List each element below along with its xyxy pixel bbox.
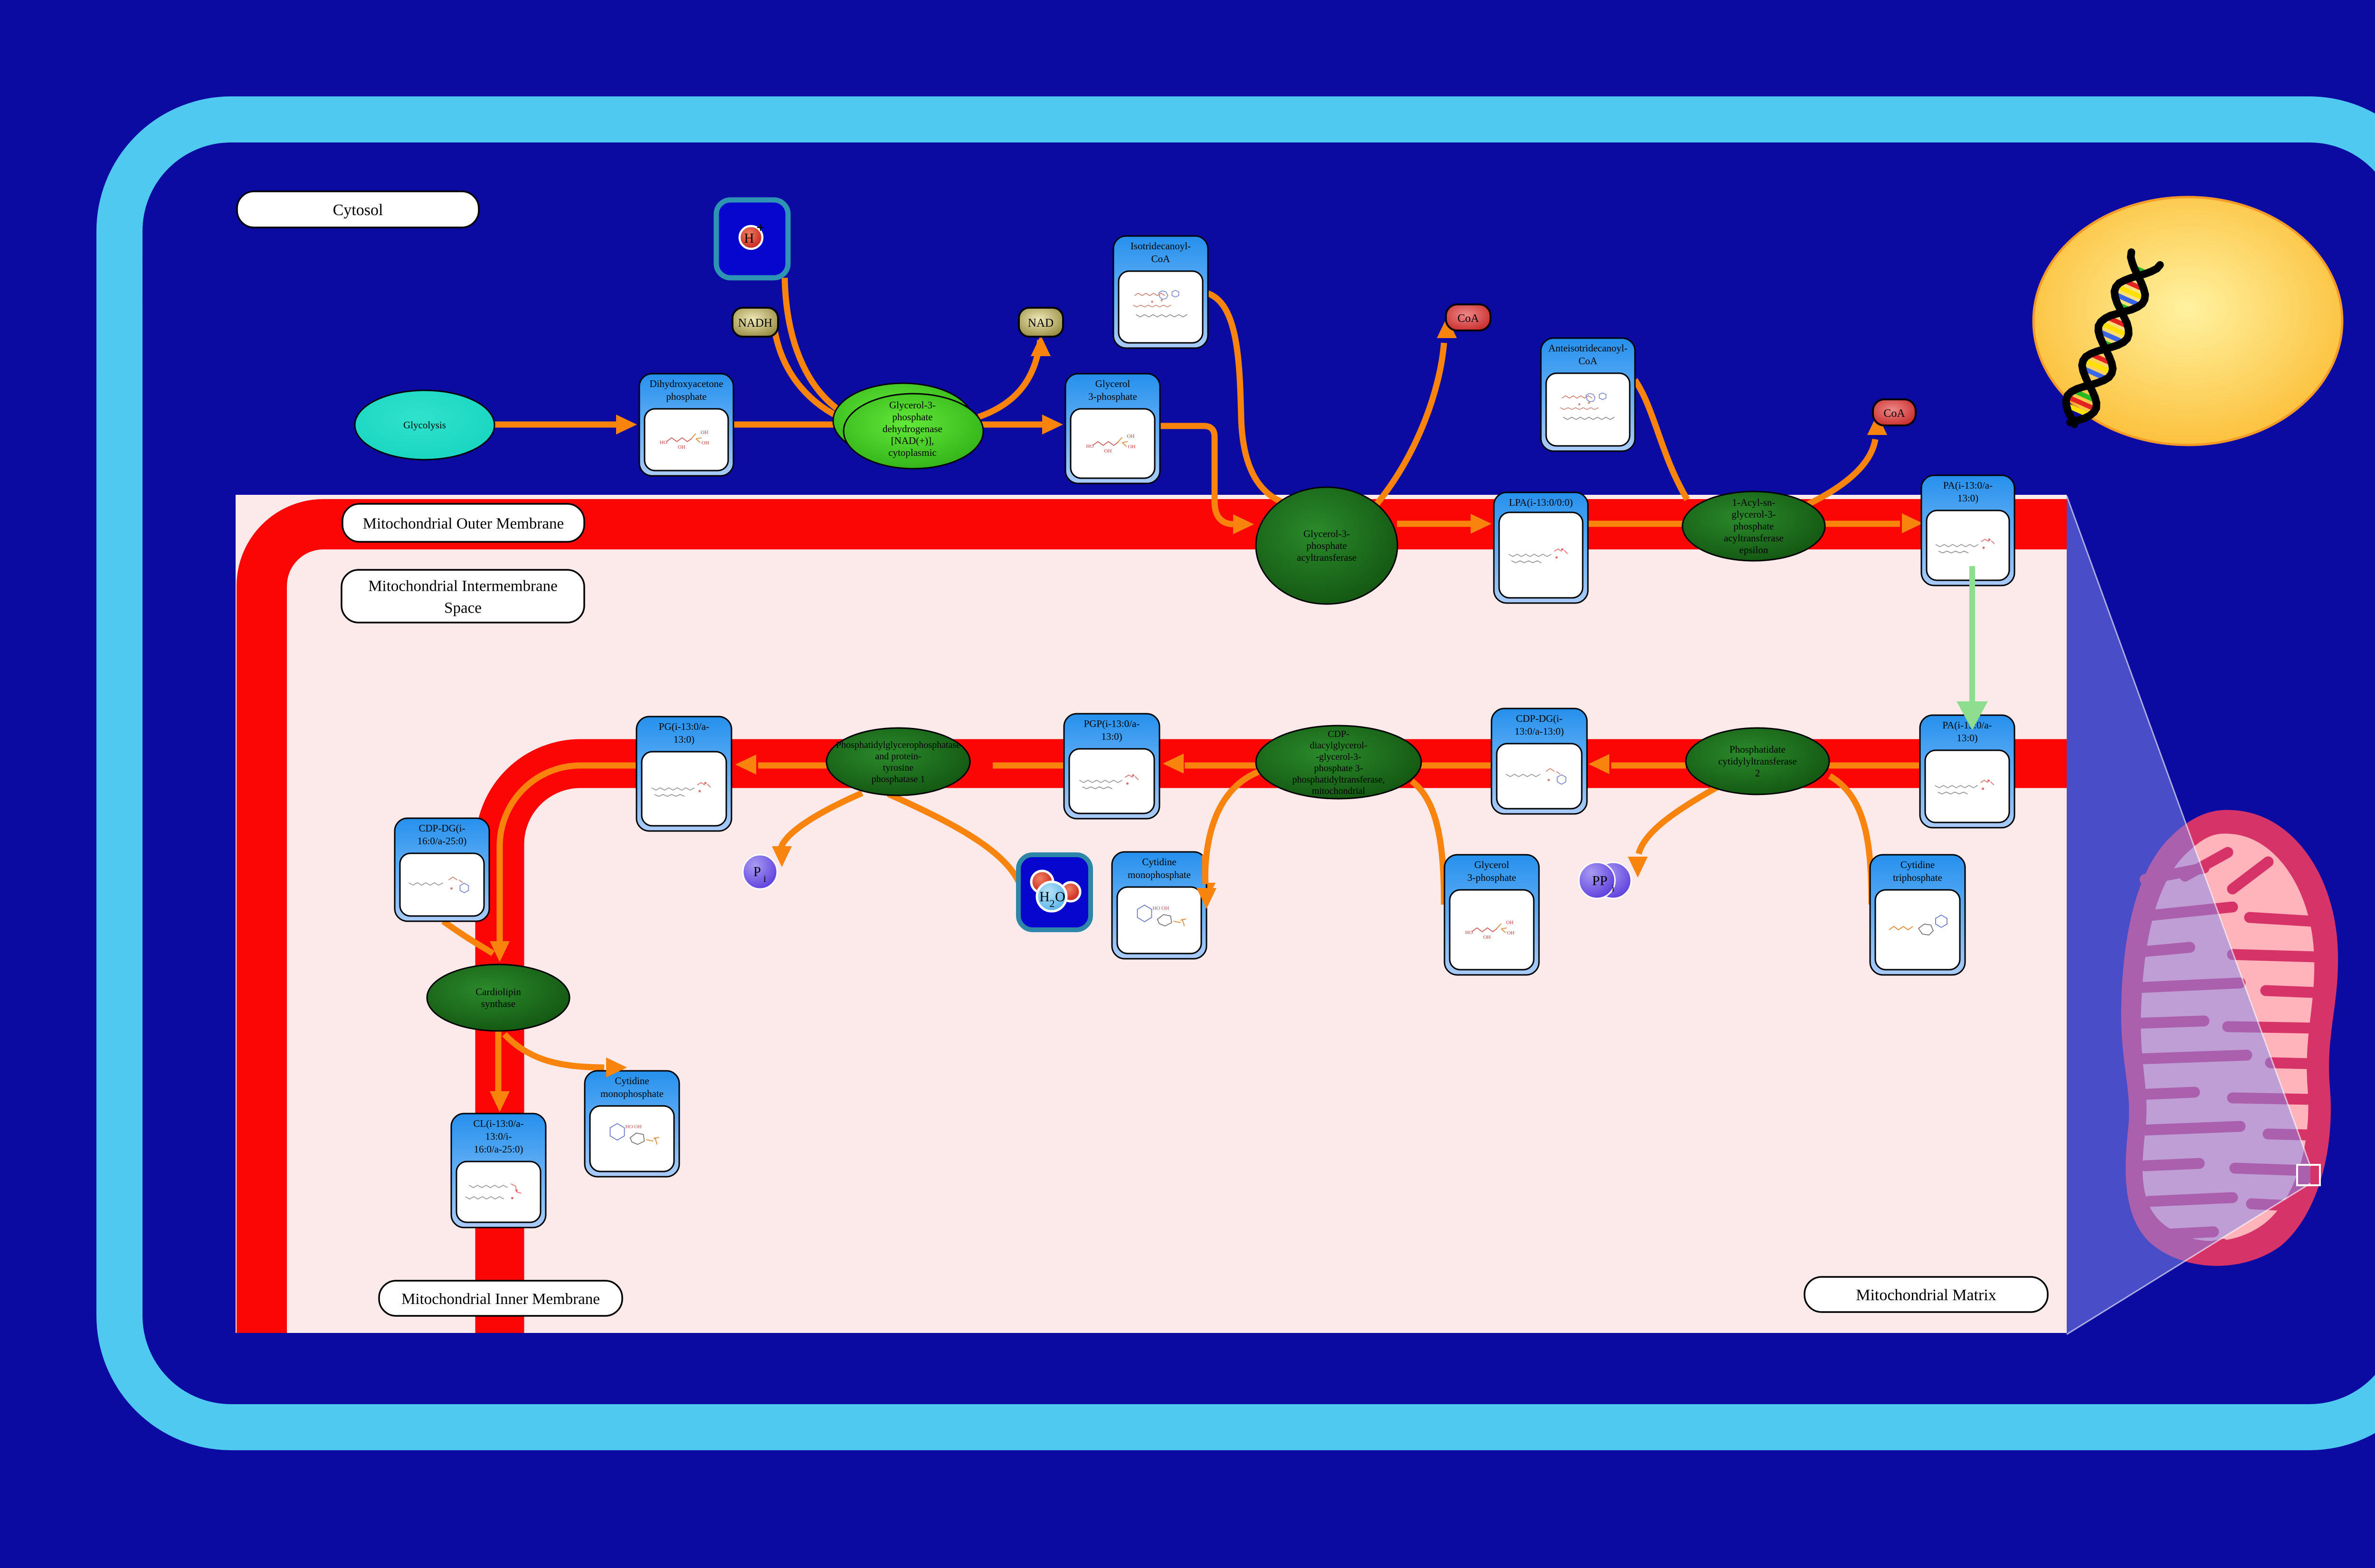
svg-text:phosphate: phosphate <box>892 411 932 423</box>
svg-text:glycerol-3-: glycerol-3- <box>1731 509 1776 520</box>
svg-text:CDP-: CDP- <box>1328 729 1349 739</box>
svg-text:O: O <box>1055 889 1065 905</box>
svg-text:CoA: CoA <box>1151 253 1171 264</box>
svg-text:CoA: CoA <box>1457 312 1479 325</box>
svg-text:OH: OH <box>701 430 708 435</box>
svg-text:Mitochondrial Matrix: Mitochondrial Matrix <box>1856 1286 1996 1304</box>
svg-text:16:0/a-25:0): 16:0/a-25:0) <box>418 835 467 847</box>
svg-text:13:0): 13:0) <box>1957 732 1977 744</box>
svg-text:i: i <box>763 874 766 884</box>
svg-text:H: H <box>744 231 754 246</box>
svg-text:CDP-DG(i-: CDP-DG(i- <box>1516 713 1563 724</box>
svg-text:CoA: CoA <box>1883 407 1905 420</box>
svg-text:+: + <box>756 220 764 236</box>
svg-text:13:0): 13:0) <box>1957 492 1978 504</box>
svg-text:P: P <box>753 865 761 879</box>
svg-text:Anteisotridecanoyl-: Anteisotridecanoyl- <box>1548 342 1628 354</box>
svg-text:phosphate: phosphate <box>1306 540 1347 551</box>
svg-text:Glycerol: Glycerol <box>1474 859 1510 870</box>
svg-text:OH: OH <box>1104 448 1112 454</box>
svg-text:HO: HO <box>660 440 667 445</box>
svg-text:HO OH: HO OH <box>1153 906 1169 911</box>
svg-text:OH: OH <box>1128 444 1136 450</box>
svg-text:mitochondrial: mitochondrial <box>1312 786 1366 796</box>
svg-text:CDP-DG(i-: CDP-DG(i- <box>419 822 465 834</box>
svg-text:PG(i-13:0/a-: PG(i-13:0/a- <box>659 721 709 732</box>
svg-text:Space: Space <box>444 600 482 617</box>
svg-text:3-phosphate: 3-phosphate <box>1088 391 1137 402</box>
svg-text:monophosphate: monophosphate <box>600 1088 664 1099</box>
svg-text:Cytosol: Cytosol <box>333 201 383 219</box>
svg-text:OH: OH <box>702 440 709 446</box>
svg-text:1-Acyl-sn-: 1-Acyl-sn- <box>1732 497 1776 508</box>
svg-text:and protein-: and protein- <box>875 751 921 762</box>
svg-text:phosphate: phosphate <box>1733 520 1774 532</box>
svg-text:PA(i-13:0/a-: PA(i-13:0/a- <box>1943 480 1993 491</box>
svg-text:acyltransferase: acyltransferase <box>1724 532 1784 544</box>
svg-text:synthase: synthase <box>481 998 515 1010</box>
svg-text:2: 2 <box>1050 897 1055 909</box>
svg-text:16:0/a-25:0): 16:0/a-25:0) <box>474 1143 523 1155</box>
svg-text:HO: HO <box>1465 930 1473 935</box>
svg-text:triphosphate: triphosphate <box>1893 872 1942 883</box>
svg-text:NAD: NAD <box>1028 317 1054 330</box>
svg-text:13:0): 13:0) <box>1101 731 1122 742</box>
svg-text:phosphate: phosphate <box>666 391 706 402</box>
svg-text:phosphate 3-: phosphate 3- <box>1314 763 1363 774</box>
svg-text:monophosphate: monophosphate <box>1128 869 1191 880</box>
svg-text:PGP(i-13:0/a-: PGP(i-13:0/a- <box>1084 718 1140 729</box>
svg-text:13:0/a-13:0): 13:0/a-13:0) <box>1515 726 1564 737</box>
svg-text:Mitochondrial Inner Membrane: Mitochondrial Inner Membrane <box>401 1291 600 1308</box>
svg-text:Phosphatidate: Phosphatidate <box>1729 744 1786 755</box>
svg-text:dehydrogenase: dehydrogenase <box>883 423 942 435</box>
svg-text:NADH: NADH <box>738 317 772 330</box>
svg-text:PP: PP <box>1592 873 1607 888</box>
svg-text:Mitochondrial Outer Membrane: Mitochondrial Outer Membrane <box>363 515 564 532</box>
svg-text:CoA: CoA <box>1578 355 1598 367</box>
svg-text:phosphatidyltransferase,: phosphatidyltransferase, <box>1292 775 1385 785</box>
svg-text:HO: HO <box>1086 444 1094 449</box>
svg-text:PA(i-13:0/a-: PA(i-13:0/a- <box>1942 719 1992 731</box>
svg-text:Cytidine: Cytidine <box>615 1075 649 1086</box>
svg-text:cytidylyltransferase: cytidylyltransferase <box>1718 756 1797 767</box>
svg-text:Dihydroxyacetone: Dihydroxyacetone <box>649 378 723 389</box>
svg-text:Cardiolipin: Cardiolipin <box>475 986 521 998</box>
svg-text:13:0/i-: 13:0/i- <box>485 1131 512 1142</box>
svg-text:Glycerol-3-: Glycerol-3- <box>1303 528 1350 539</box>
svg-text:OH: OH <box>678 444 685 450</box>
svg-text:epsilon: epsilon <box>1739 544 1768 556</box>
svg-text:acyltransferase: acyltransferase <box>1297 552 1357 563</box>
svg-text:diacylglycerol-: diacylglycerol- <box>1310 740 1367 751</box>
svg-text:cytoplasmic: cytoplasmic <box>888 447 936 458</box>
svg-text:13:0): 13:0) <box>674 734 694 745</box>
svg-text:Phosphatidylglycerophosphatase: Phosphatidylglycerophosphatase <box>836 740 960 750</box>
svg-text:Glycerol: Glycerol <box>1095 378 1130 389</box>
svg-text:LPA(i-13:0/0:0): LPA(i-13:0/0:0) <box>1509 497 1573 508</box>
svg-text:[NAD(+)],: [NAD(+)], <box>891 435 934 446</box>
svg-text:phosphatase 1: phosphatase 1 <box>872 774 925 784</box>
svg-text:OH: OH <box>1507 930 1515 936</box>
svg-text:CL(i-13:0/a-: CL(i-13:0/a- <box>473 1118 523 1129</box>
svg-text:Cytidine: Cytidine <box>1900 859 1935 870</box>
svg-text:i: i <box>1612 882 1615 894</box>
svg-text:H: H <box>1039 889 1050 905</box>
svg-text:OH: OH <box>1127 434 1135 439</box>
svg-text:-glycerol-3-: -glycerol-3- <box>1316 752 1361 762</box>
svg-text:Glycerol-3-: Glycerol-3- <box>889 399 936 411</box>
svg-text:Isotridecanoyl-: Isotridecanoyl- <box>1130 240 1191 252</box>
svg-text:HO OH: HO OH <box>626 1124 642 1130</box>
svg-text:2: 2 <box>1755 767 1760 779</box>
svg-text:OH: OH <box>1483 935 1491 940</box>
svg-text:OH: OH <box>1506 920 1514 926</box>
svg-text:Mitochondrial Intermembrane: Mitochondrial Intermembrane <box>368 578 558 595</box>
svg-text:Glycolysis: Glycolysis <box>403 419 446 431</box>
svg-text:Cytidine: Cytidine <box>1142 856 1176 868</box>
svg-text:tyrosine: tyrosine <box>883 763 914 773</box>
svg-text:3-phosphate: 3-phosphate <box>1467 872 1516 883</box>
